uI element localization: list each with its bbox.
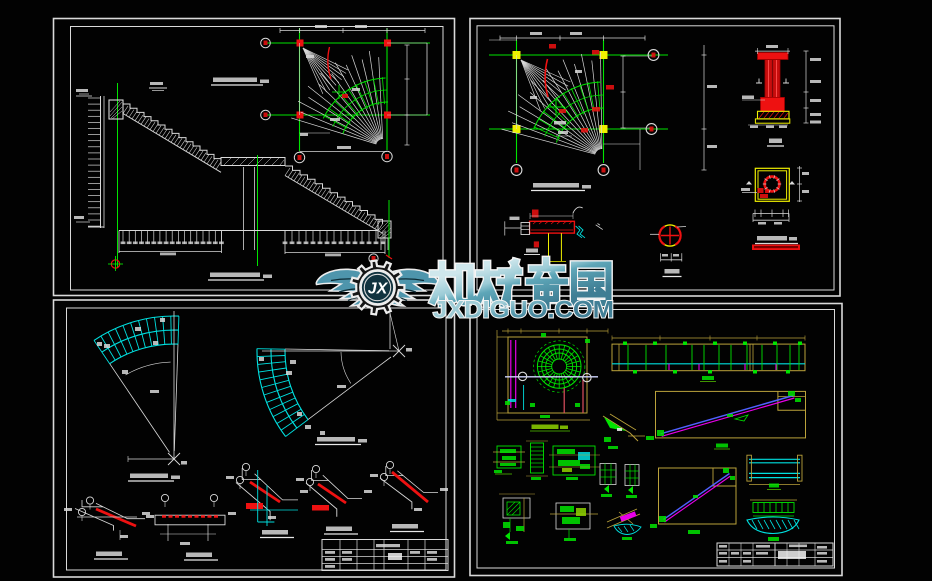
svg-text:JXDIGUO.COM: JXDIGUO.COM — [433, 297, 614, 324]
svg-text:JX: JX — [368, 280, 389, 297]
